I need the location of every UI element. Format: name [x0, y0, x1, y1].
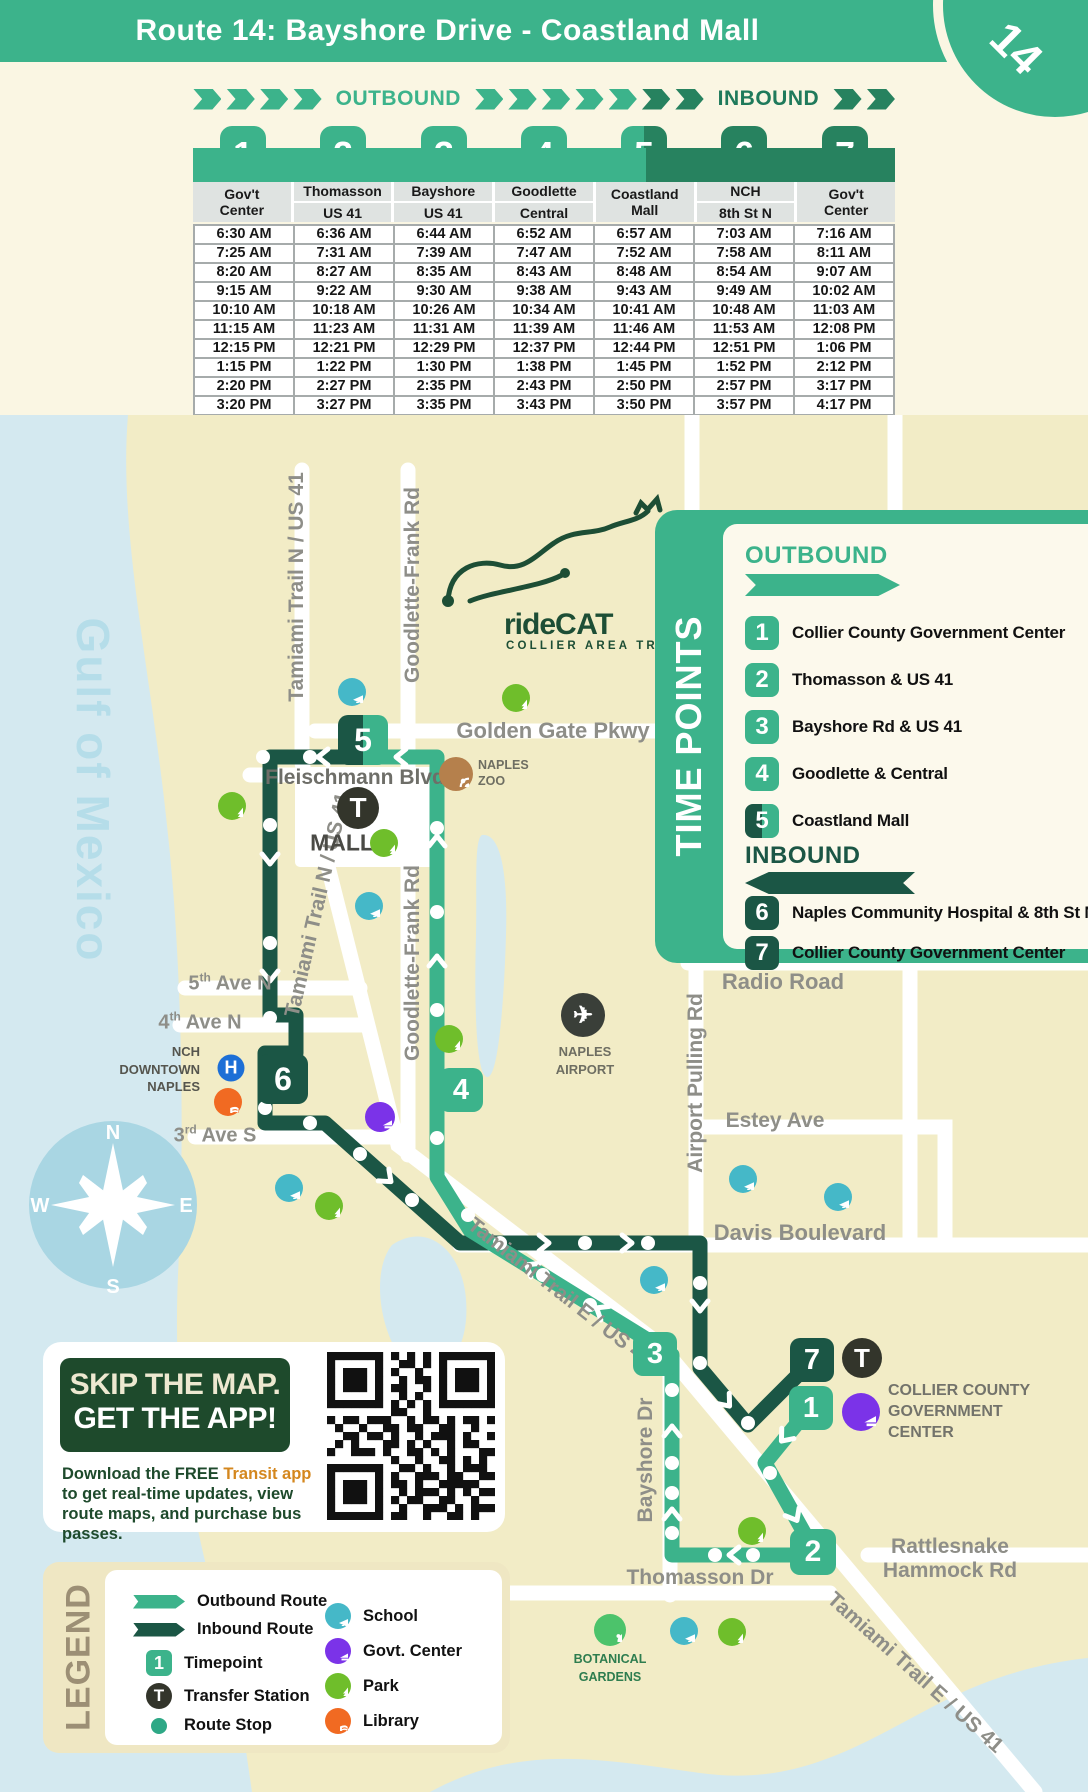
chevron-icon — [542, 89, 570, 110]
transfer-station-icon: T — [337, 787, 379, 829]
header-bar: Route 14: Bayshore Drive - Coastland Mal… — [0, 0, 1088, 62]
time-cell: 1:30 PM — [395, 359, 493, 376]
route-map: N W E S Gulf of Mexico rideCAT COLLIER A… — [0, 415, 1088, 1792]
timepoint-item-1: 1Collier County Government Center — [745, 616, 1065, 650]
chevron-icon — [642, 89, 670, 110]
schedule-row: 8:20 AM8:27 AM8:35 AM8:43 AM8:48 AM8:54 … — [195, 264, 893, 281]
time-cell: 10:02 AM — [795, 283, 893, 300]
timepoints-strip: TIME POINTS — [655, 510, 723, 963]
school-icon — [640, 1266, 668, 1294]
time-cell: 7:31 AM — [295, 245, 393, 262]
route-poster: Route 14: Bayshore Drive - Coastland Mal… — [0, 0, 1088, 1792]
inbound-route-icon — [133, 1623, 185, 1637]
outbound-route-icon — [133, 1595, 185, 1609]
poi-label-mall: MALL — [310, 830, 374, 857]
park-icon — [325, 1673, 351, 1699]
street-label-goodlette-2: Goodlette-Frank Rd — [401, 865, 425, 1061]
street-label-4th-ave: 4th Ave N — [158, 1010, 241, 1035]
time-cell: 11:53 AM — [695, 321, 793, 338]
time-cell: 6:52 AM — [495, 226, 593, 243]
schedule-row: 10:10 AM10:18 AM10:26 AM10:34 AM10:41 AM… — [195, 302, 893, 319]
botanical-gardens-icon — [594, 1614, 626, 1646]
legend-park: Park — [325, 1673, 399, 1699]
time-cell: 1:22 PM — [295, 359, 393, 376]
map-timepoint-7: 7 — [790, 1338, 834, 1382]
street-label-airport-pulling: Airport Pulling Rd — [684, 993, 708, 1173]
park-icon — [738, 1517, 766, 1545]
time-cell: 9:15 AM — [195, 283, 293, 300]
time-cell: 11:15 AM — [195, 321, 293, 338]
legend-panel: LEGEND Outbound Route Inbound Route 1Tim… — [43, 1562, 510, 1753]
app-headline-2: GET THE APP! — [60, 1402, 290, 1436]
time-cell: 9:22 AM — [295, 283, 393, 300]
time-cell: 8:48 AM — [595, 264, 693, 281]
park-icon — [218, 792, 246, 820]
legend-timepoint: 1Timepoint — [146, 1650, 263, 1676]
time-cell: 2:57 PM — [695, 378, 793, 395]
time-cell: 11:31 AM — [395, 321, 493, 338]
time-cell: 3:43 PM — [495, 397, 593, 414]
time-cell: 2:35 PM — [395, 378, 493, 395]
route-stop-icon — [151, 1718, 167, 1734]
legend-inbound: Inbound Route — [133, 1620, 313, 1639]
park-icon — [315, 1192, 343, 1220]
inbound-arrow — [745, 872, 915, 894]
time-cell: 12:44 PM — [595, 340, 693, 357]
timepoint-item-7: 7Collier County Government Center — [745, 936, 1065, 970]
time-cell: 1:15 PM — [195, 359, 293, 376]
app-headline-box: SKIP THE MAP. GET THE APP! — [60, 1358, 290, 1452]
transfer-station-icon: T — [842, 1338, 882, 1378]
timepoint-item-3: 3Bayshore Rd & US 41 — [745, 710, 962, 744]
app-headline-1: SKIP THE MAP. — [60, 1368, 290, 1402]
timepoint-icon: 1 — [146, 1650, 172, 1676]
time-cell: 7:47 AM — [495, 245, 593, 262]
poi-label-airport: NAPLESAIRPORT — [540, 1043, 630, 1079]
chevron-icon — [575, 89, 603, 110]
schedule-row: 7:25 AM7:31 AM7:39 AM7:47 AM7:52 AM7:58 … — [195, 245, 893, 262]
airport-icon: ✈ — [561, 993, 605, 1037]
app-promo-card: SKIP THE MAP. GET THE APP! Download the … — [43, 1342, 505, 1532]
map-timepoint-3: 3 — [633, 1332, 677, 1376]
time-cell: 6:30 AM — [195, 226, 293, 243]
legend-library: Library — [325, 1708, 419, 1734]
street-label-rattlesnake-1: Rattlesnake — [891, 1535, 1009, 1559]
column-header: ThomassonUS 41 — [294, 182, 392, 222]
timepoints-list: OUTBOUND 1Collier County Government Cent… — [723, 524, 1088, 949]
time-cell: 8:43 AM — [495, 264, 593, 281]
legend-transfer: TTransfer Station — [146, 1683, 310, 1709]
time-cell: 3:57 PM — [695, 397, 793, 414]
svg-text:W: W — [31, 1195, 50, 1217]
column-header: CoastlandMall — [596, 182, 694, 222]
school-icon — [275, 1174, 303, 1202]
ridecat-logo: rideCAT COLLIER AREA TRANSIT — [430, 500, 660, 660]
timepoints-outbound-label: OUTBOUND — [745, 542, 888, 570]
chevron-icon — [508, 89, 536, 110]
chevron-icon — [193, 89, 221, 110]
map-timepoint-4: 4 — [439, 1068, 483, 1112]
park-icon — [370, 829, 398, 857]
hospital-icon: H — [218, 1055, 245, 1082]
legend-outbound: Outbound Route — [133, 1592, 327, 1611]
map-timepoint-2: 2 — [790, 1529, 836, 1575]
chevron-icon — [609, 89, 637, 110]
time-cell: 10:10 AM — [195, 302, 293, 319]
column-header: Gov'tCenter — [193, 182, 291, 222]
chevron-icon — [675, 89, 703, 110]
outbound-label: OUTBOUND — [336, 87, 461, 111]
time-cell: 3:35 PM — [395, 397, 493, 414]
time-cell: 2:12 PM — [795, 359, 893, 376]
time-cell: 2:20 PM — [195, 378, 293, 395]
map-timepoint-1: 1 — [789, 1386, 833, 1430]
time-cell: 12:15 PM — [195, 340, 293, 357]
schedule-header-row: Gov'tCenter ThomassonUS 41 BayshoreUS 41… — [193, 182, 895, 222]
chevron-icon — [867, 89, 895, 110]
time-cell: 7:25 AM — [195, 245, 293, 262]
street-label-bayshore: Bayshore Dr — [634, 1398, 658, 1523]
chevron-icon — [833, 89, 861, 110]
page-title: Route 14: Bayshore Drive - Coastland Mal… — [0, 0, 895, 62]
outbound-arrow — [745, 574, 900, 596]
time-cell: 8:20 AM — [195, 264, 293, 281]
library-icon — [214, 1088, 242, 1116]
govt-center-icon — [325, 1638, 351, 1664]
time-cell: 1:52 PM — [695, 359, 793, 376]
time-cell: 9:38 AM — [495, 283, 593, 300]
lake-1 — [475, 835, 506, 1077]
time-cell: 8:11 AM — [795, 245, 893, 262]
street-label-radio: Radio Road — [722, 969, 844, 995]
time-cell: 12:08 PM — [795, 321, 893, 338]
schedule-row: 1:15 PM1:22 PM1:30 PM1:38 PM1:45 PM1:52 … — [195, 359, 893, 376]
legend-title: LEGEND — [60, 1583, 99, 1731]
chevron-icon — [226, 89, 254, 110]
schedule-row: 11:15 AM11:23 AM11:31 AM11:39 AM11:46 AM… — [195, 321, 893, 338]
time-cell: 3:17 PM — [795, 378, 893, 395]
time-cell: 12:37 PM — [495, 340, 593, 357]
time-cell: 7:03 AM — [695, 226, 793, 243]
time-cell: 8:35 AM — [395, 264, 493, 281]
time-cell: 7:39 AM — [395, 245, 493, 262]
timepoints-title: TIME POINTS — [668, 615, 710, 856]
time-cell: 12:21 PM — [295, 340, 393, 357]
park-icon — [502, 684, 530, 712]
time-cell: 9:43 AM — [595, 283, 693, 300]
timepoints-panel: TIME POINTS OUTBOUND 1Collier County Gov… — [655, 510, 1088, 963]
legend-school: School — [325, 1603, 418, 1629]
poi-label-gov-center: COLLIER COUNTYGOVERNMENTCENTER — [888, 1381, 1030, 1443]
street-label-golden-gate: Golden Gate Pkwy — [456, 718, 649, 744]
poi-label-botanical: BOTANICALGARDENS — [560, 1651, 660, 1686]
schedule-row: 9:15 AM9:22 AM9:30 AM9:38 AM9:43 AM9:49 … — [195, 283, 893, 300]
zoo-icon — [439, 757, 473, 791]
svg-text:S: S — [106, 1276, 119, 1298]
inbound-label: INBOUND — [718, 87, 820, 111]
time-cell: 12:29 PM — [395, 340, 493, 357]
timepoint-item-5: 5Coastland Mall — [745, 804, 909, 838]
time-cell: 8:27 AM — [295, 264, 393, 281]
time-cell: 4:17 PM — [795, 397, 893, 414]
svg-text:N: N — [106, 1122, 120, 1144]
time-cell: 11:46 AM — [595, 321, 693, 338]
qr-code — [327, 1352, 495, 1520]
chevron-icon — [475, 89, 503, 110]
tab-band — [193, 148, 895, 182]
time-cell: 6:57 AM — [595, 226, 693, 243]
street-label-estey: Estey Ave — [726, 1109, 825, 1133]
time-cell: 11:39 AM — [495, 321, 593, 338]
time-cell: 1:06 PM — [795, 340, 893, 357]
map-timepoint-6: 6 — [258, 1054, 308, 1104]
time-cell: 7:58 AM — [695, 245, 793, 262]
street-label-tamiami-n: Tamiami Trail N / US 41 — [285, 472, 309, 702]
time-cell: 11:03 AM — [795, 302, 893, 319]
schedule-row: 12:15 PM12:21 PM12:29 PM12:37 PM12:44 PM… — [195, 340, 893, 357]
school-icon — [729, 1165, 757, 1193]
time-cell: 2:50 PM — [595, 378, 693, 395]
time-cell: 3:50 PM — [595, 397, 693, 414]
govt-center-icon — [365, 1102, 395, 1132]
time-cell: 12:51 PM — [695, 340, 793, 357]
legend-govt: Govt. Center — [325, 1638, 462, 1664]
street-label-thomasson: Thomasson Dr — [626, 1566, 773, 1590]
transfer-station-icon: T — [146, 1683, 172, 1709]
time-cell: 6:36 AM — [295, 226, 393, 243]
time-cell: 10:18 AM — [295, 302, 393, 319]
schedule-row: 2:20 PM2:27 PM2:35 PM2:43 PM2:50 PM2:57 … — [195, 378, 893, 395]
school-icon — [824, 1183, 852, 1211]
time-cell: 8:54 AM — [695, 264, 793, 281]
time-cell: 1:38 PM — [495, 359, 593, 376]
street-label-rattlesnake-2: Hammock Rd — [883, 1559, 1017, 1583]
column-header: BayshoreUS 41 — [394, 182, 492, 222]
map-timepoint-5: 5 — [338, 715, 388, 765]
time-cell: 9:07 AM — [795, 264, 893, 281]
legend-items: Outbound Route Inbound Route 1Timepoint … — [105, 1570, 502, 1745]
column-header: Gov'tCenter — [797, 182, 895, 222]
timepoints-inbound-label: INBOUND — [745, 842, 861, 870]
poi-label-nch: NCHDOWNTOWNNAPLES — [108, 1043, 200, 1096]
time-cell: 10:34 AM — [495, 302, 593, 319]
route-number-badge: 14 — [933, 0, 1088, 127]
govt-center-icon — [842, 1393, 880, 1431]
chevron-icon — [293, 89, 321, 110]
legend-route-stop: Route Stop — [146, 1716, 272, 1735]
chevron-icon — [260, 89, 288, 110]
column-header: NCH8th St N — [697, 182, 795, 222]
svg-text:E: E — [179, 1195, 192, 1217]
time-cell: 9:30 AM — [395, 283, 493, 300]
time-cell: 10:48 AM — [695, 302, 793, 319]
school-icon — [338, 678, 366, 706]
timepoint-item-2: 2Thomasson & US 41 — [745, 663, 953, 697]
time-cell: 10:26 AM — [395, 302, 493, 319]
time-cell: 2:43 PM — [495, 378, 593, 395]
timepoint-item-6: 6Naples Community Hospital & 8th St N — [745, 896, 1088, 930]
time-cell: 3:20 PM — [195, 397, 293, 414]
time-cell: 7:52 AM — [595, 245, 693, 262]
time-cell: 9:49 AM — [695, 283, 793, 300]
school-icon — [355, 892, 383, 920]
time-cell: 7:16 AM — [795, 226, 893, 243]
gulf-of-mexico-label: Gulf of Mexico — [66, 618, 120, 963]
park-icon — [435, 1025, 463, 1053]
ridecat-wordmark: rideCAT — [504, 608, 613, 642]
schedule-row: 3:20 PM3:27 PM3:35 PM3:43 PM3:50 PM3:57 … — [195, 397, 893, 414]
street-label-davis: Davis Boulevard — [714, 1220, 886, 1246]
time-cell: 3:27 PM — [295, 397, 393, 414]
street-label-3rd-ave: 3rd Ave S — [174, 1123, 257, 1148]
street-label-goodlette: Goodlette-Frank Rd — [401, 487, 425, 683]
school-icon — [325, 1603, 351, 1629]
transit-app-text: Transit app — [223, 1465, 311, 1483]
direction-strip: OUTBOUND INBOUND — [193, 86, 895, 112]
time-cell: 11:23 AM — [295, 321, 393, 338]
schedule-rows: 6:30 AM6:36 AM6:44 AM6:52 AM6:57 AM7:03 … — [193, 224, 895, 416]
time-cell: 6:44 AM — [395, 226, 493, 243]
poi-label-zoo: NAPLESZOO — [478, 757, 529, 790]
schedule-row: 6:30 AM6:36 AM6:44 AM6:52 AM6:57 AM7:03 … — [195, 226, 893, 243]
column-header: GoodletteCentral — [495, 182, 593, 222]
timepoint-item-4: 4Goodlette & Central — [745, 757, 948, 791]
app-body-text: Download the FREE Transit app to get rea… — [62, 1464, 312, 1545]
time-cell: 10:41 AM — [595, 302, 693, 319]
street-label-5th-ave: 5th Ave N — [188, 971, 271, 996]
time-cell: 2:27 PM — [295, 378, 393, 395]
school-icon — [670, 1617, 698, 1645]
time-cell: 1:45 PM — [595, 359, 693, 376]
library-icon — [325, 1708, 351, 1734]
park-icon — [718, 1618, 746, 1646]
